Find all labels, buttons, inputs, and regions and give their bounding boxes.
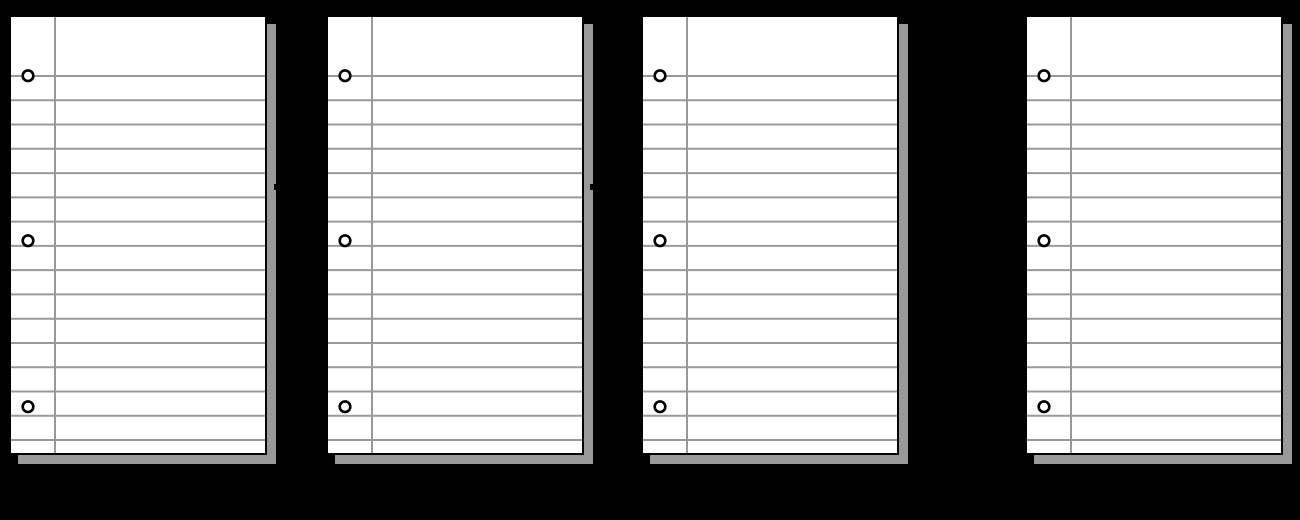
punch-hole: [655, 70, 666, 81]
punch-hole: [1039, 401, 1050, 412]
punch-hole: [655, 235, 666, 246]
punch-hole: [655, 401, 666, 412]
punch-hole: [340, 70, 351, 81]
paper-sheet: [9, 15, 267, 455]
paper-sheet: [1025, 15, 1283, 455]
punch-hole: [340, 235, 351, 246]
punch-hole: [23, 401, 34, 412]
scene-canvas: [0, 0, 1300, 520]
punch-hole: [1039, 235, 1050, 246]
punch-hole: [23, 70, 34, 81]
shadow-notch: [590, 184, 593, 190]
punch-hole: [23, 235, 34, 246]
paper-rulings-svg: [11, 17, 265, 453]
paper-sheet: [641, 15, 899, 455]
paper-rulings-svg: [328, 17, 582, 453]
paper-sheet: [326, 15, 584, 455]
paper-rulings-svg: [1027, 17, 1281, 453]
shadow-notch: [274, 184, 277, 190]
punch-hole: [340, 401, 351, 412]
punch-hole: [1039, 70, 1050, 81]
paper-rulings-svg: [643, 17, 897, 453]
